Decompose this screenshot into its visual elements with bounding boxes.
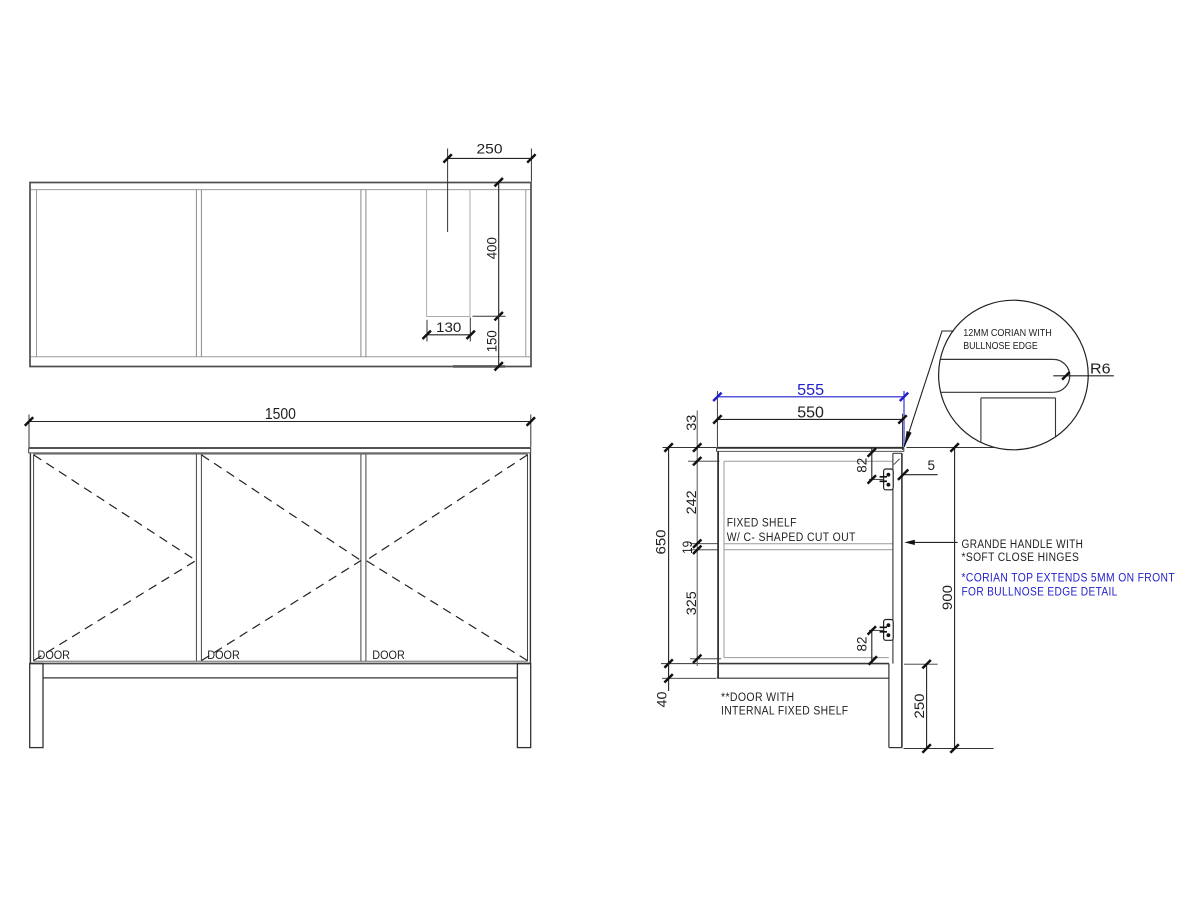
svg-text:33: 33 [683,414,699,430]
svg-text:1500: 1500 [265,406,296,423]
svg-text:242: 242 [683,490,699,514]
svg-text:**DOOR WITH: **DOOR WITH [721,692,795,704]
svg-text:555: 555 [797,382,824,399]
svg-text:W/ C- SHAPED CUT OUT: W/ C- SHAPED CUT OUT [727,532,856,544]
svg-text:FOR BULLNOSE EDGE DETAIL: FOR BULLNOSE EDGE DETAIL [962,586,1118,598]
svg-text:650: 650 [653,529,669,554]
svg-text:DOOR: DOOR [38,648,71,662]
svg-text:FIXED SHELF: FIXED SHELF [727,518,797,530]
svg-text:250: 250 [477,141,503,157]
svg-text:DOOR: DOOR [372,648,405,662]
svg-text:R6: R6 [1090,361,1111,377]
svg-text:82: 82 [853,636,869,651]
svg-text:40: 40 [654,691,670,707]
svg-text:DOOR: DOOR [207,648,240,662]
svg-text:BULLNOSE EDGE: BULLNOSE EDGE [963,340,1038,352]
svg-text:900: 900 [939,585,955,610]
svg-text:250: 250 [911,693,927,718]
svg-text:12MM CORIAN WITH: 12MM CORIAN WITH [963,327,1052,339]
svg-text:400: 400 [484,237,500,259]
svg-text:GRANDE HANDLE WITH: GRANDE HANDLE WITH [962,539,1084,551]
svg-text:325: 325 [683,591,699,615]
svg-text:INTERNAL FIXED SHELF: INTERNAL FIXED SHELF [721,705,849,717]
svg-text:82: 82 [853,458,869,473]
svg-text:*CORIAN TOP EXTENDS 5MM ON FRO: *CORIAN TOP EXTENDS 5MM ON FRONT [962,573,1176,585]
svg-text:19: 19 [679,541,695,554]
svg-text:550: 550 [797,405,824,422]
svg-text:150: 150 [484,330,500,352]
svg-text:5: 5 [928,458,936,473]
svg-text:*SOFT CLOSE HINGES: *SOFT CLOSE HINGES [962,552,1080,564]
svg-text:130: 130 [436,319,462,335]
